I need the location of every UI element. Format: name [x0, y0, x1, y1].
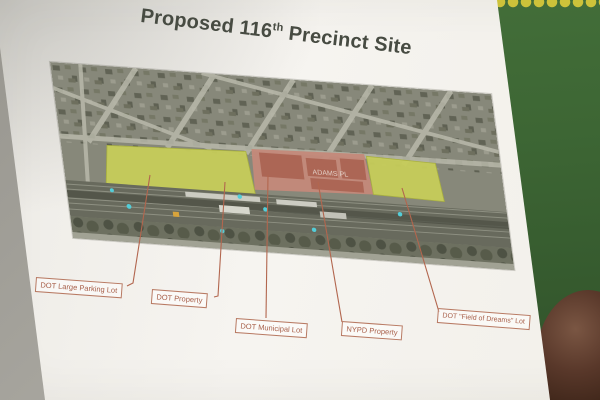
yellow-fringe-trim: [494, 0, 600, 9]
aerial-map-graphic: ADAMS PL: [50, 62, 514, 270]
label-dot-municipal-lot: DOT Municipal Lot: [235, 318, 308, 338]
label-dot-large-parking-lot: DOT Large Parking Lot: [35, 277, 123, 298]
photo-of-presentation-board: Proposed 116th Precinct Site: [0, 0, 600, 400]
label-dot-property: DOT Property: [151, 289, 208, 308]
parcel-dot-field-of-dreams-lot: [366, 156, 444, 201]
poster-title: Proposed 116th Precinct Site: [139, 5, 420, 61]
aerial-map-image: ADAMS PL: [50, 62, 514, 270]
label-nypd-property: NYPD Property: [341, 321, 403, 340]
label-dot-field-of-dreams-lot: DOT "Field of Dreams" Lot: [437, 308, 531, 330]
title-prefix: Proposed 116: [139, 5, 273, 43]
title-suffix: Precinct Site: [282, 22, 413, 59]
orange-structure: [173, 212, 180, 217]
